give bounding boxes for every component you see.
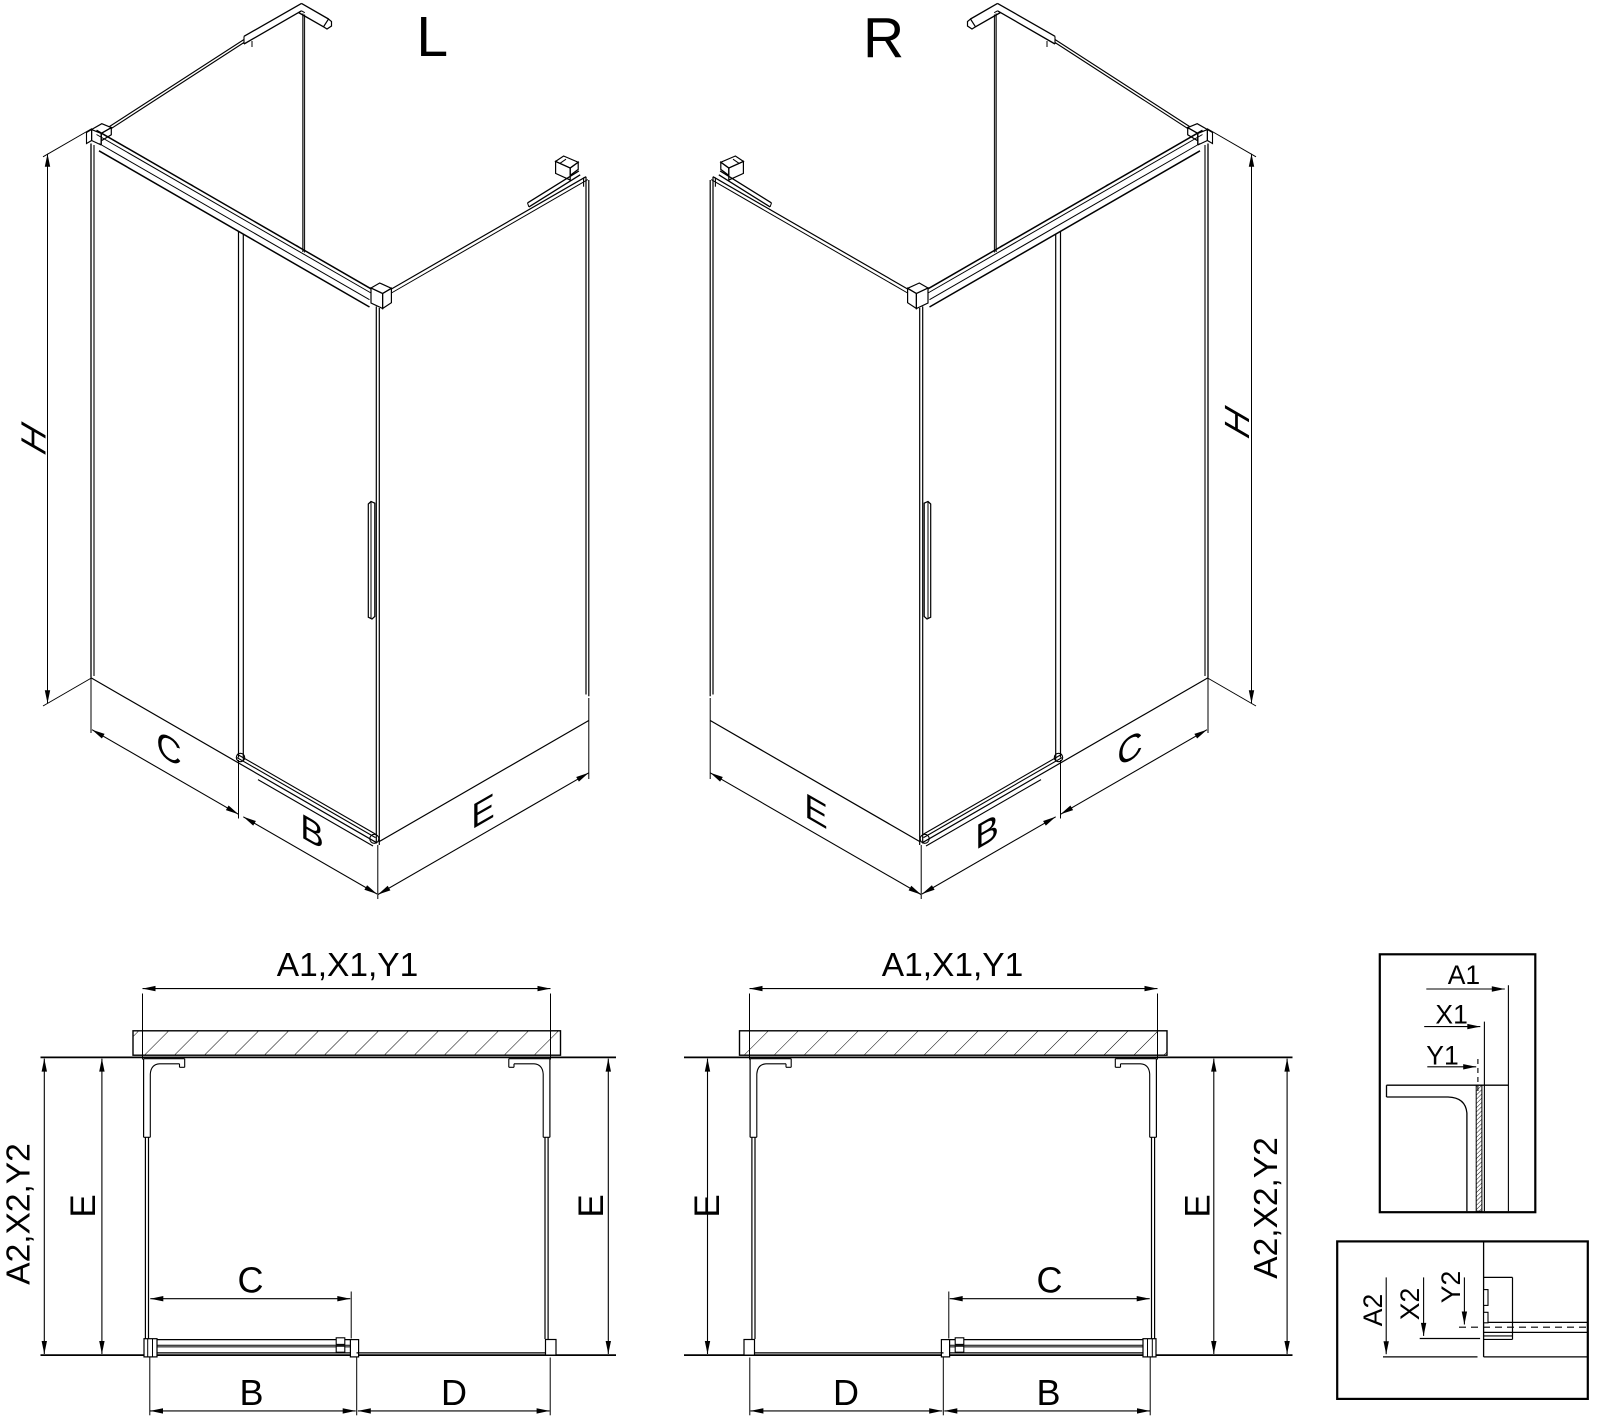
svg-text:A2,X2,Y2: A2,X2,Y2	[1, 1143, 38, 1285]
svg-text:X1: X1	[1435, 1000, 1467, 1030]
svg-text:A2,X2,Y2: A2,X2,Y2	[1248, 1137, 1285, 1279]
svg-text:E: E	[688, 1194, 727, 1217]
svg-text:Y2: Y2	[1436, 1271, 1466, 1303]
svg-text:D: D	[833, 1372, 859, 1413]
svg-text:A2: A2	[1358, 1294, 1388, 1326]
svg-text:R: R	[863, 6, 904, 70]
svg-text:Y1: Y1	[1426, 1040, 1458, 1070]
svg-text:A1,X1,Y1: A1,X1,Y1	[882, 947, 1024, 984]
svg-text:C: C	[238, 1260, 264, 1301]
svg-text:E: E	[1179, 1194, 1218, 1217]
svg-text:L: L	[416, 5, 448, 69]
svg-text:B: B	[239, 1372, 263, 1413]
svg-text:A1,X1,Y1: A1,X1,Y1	[277, 947, 419, 984]
svg-text:E: E	[572, 1194, 611, 1217]
svg-text:D: D	[441, 1372, 467, 1413]
svg-text:A1: A1	[1448, 960, 1480, 990]
svg-text:C: C	[1037, 1260, 1063, 1301]
svg-text:B: B	[1036, 1372, 1060, 1413]
svg-text:X2: X2	[1395, 1288, 1425, 1320]
svg-text:E: E	[64, 1194, 103, 1217]
